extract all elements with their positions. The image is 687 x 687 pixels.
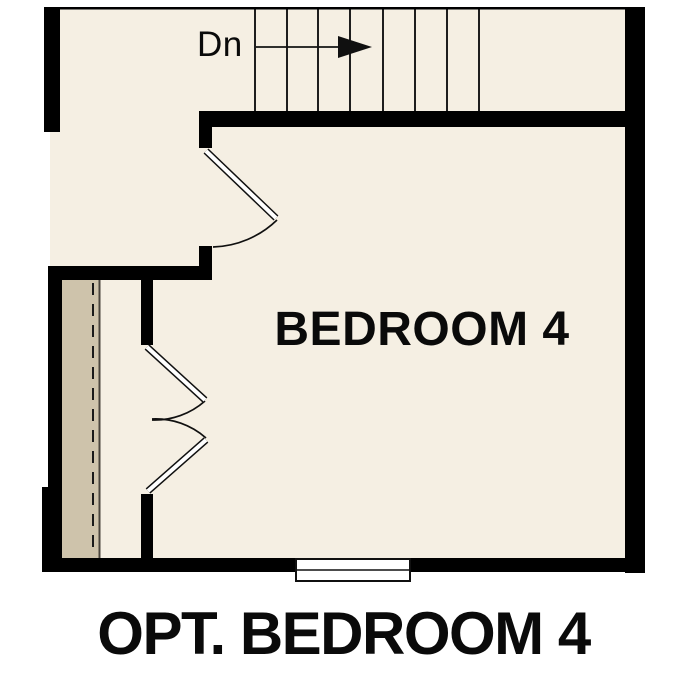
wall-closet-upper-stub xyxy=(141,280,153,345)
wall-left-upper xyxy=(48,266,62,487)
wall-entry-door-upper-stub xyxy=(199,111,212,148)
wall-closet-lower-stub xyxy=(141,494,153,558)
wall-left-lower xyxy=(42,487,62,566)
stairs-down-label: Dn xyxy=(197,27,243,62)
room-label: BEDROOM 4 xyxy=(212,306,632,354)
wall-top-edge-line xyxy=(44,7,645,10)
wall-bedroom-top xyxy=(199,111,625,127)
floor-fills xyxy=(44,7,641,566)
plan-caption: OPT. BEDROOM 4 xyxy=(0,604,687,664)
floor-area xyxy=(44,7,641,566)
wall-hall-horizontal xyxy=(48,266,212,280)
window xyxy=(296,559,410,581)
wall-right xyxy=(625,7,645,573)
floorplan-canvas: Dn BEDROOM 4 OPT. BEDROOM 4 xyxy=(0,0,687,687)
wall-upper-left-bar xyxy=(44,7,60,132)
